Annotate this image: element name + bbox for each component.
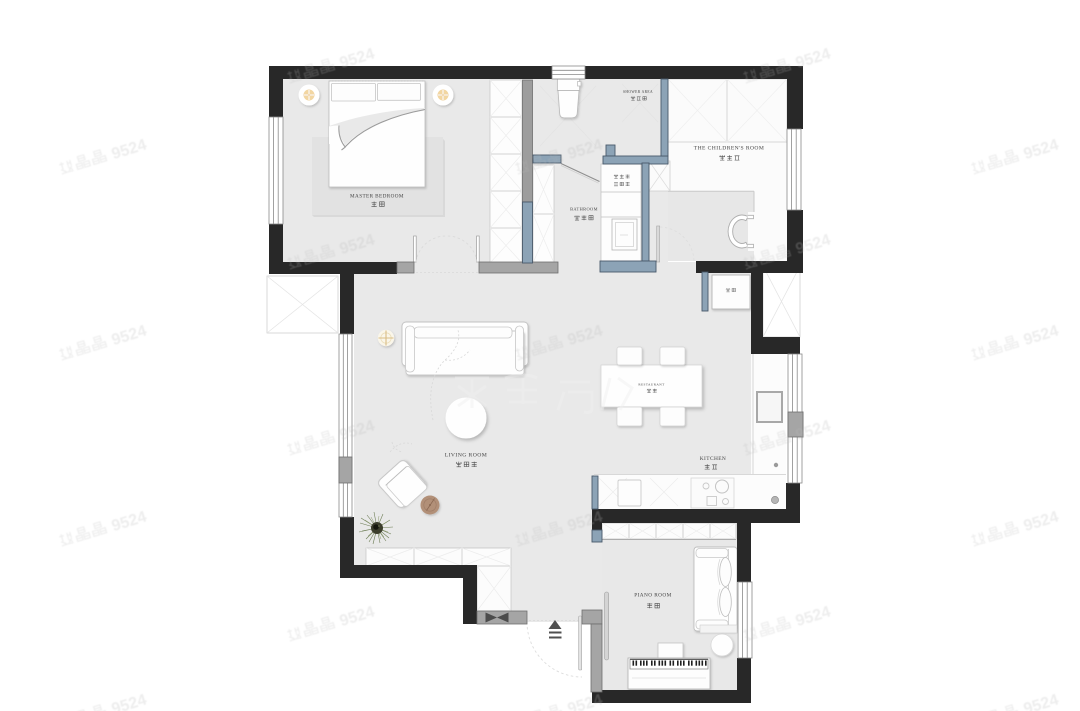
svg-text:RESTAURANT: RESTAURANT — [638, 383, 665, 387]
svg-text:KITCHEN: KITCHEN — [700, 456, 726, 462]
svg-text:PIANO ROOM: PIANO ROOM — [634, 593, 671, 599]
svg-text:LIVING ROOM: LIVING ROOM — [445, 453, 487, 459]
svg-text:BATHROOM: BATHROOM — [570, 207, 598, 212]
svg-text:MASTER BEDROOM: MASTER BEDROOM — [350, 194, 404, 200]
svg-text:THE CHILDREN'S ROOM: THE CHILDREN'S ROOM — [694, 146, 764, 152]
svg-text:SHOWER AREA: SHOWER AREA — [623, 90, 653, 94]
